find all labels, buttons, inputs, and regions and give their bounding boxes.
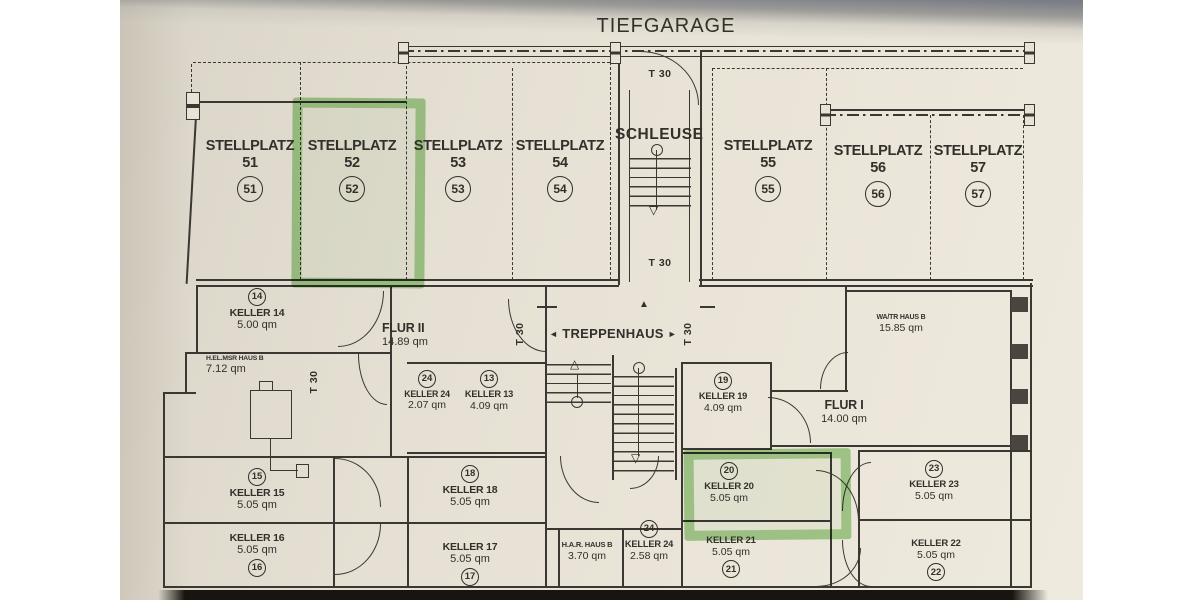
stellplatz-number-badge: 52 bbox=[339, 176, 365, 202]
room-name: KELLER 24 bbox=[618, 539, 680, 550]
room-keller-14: 14 KELLER 14 5.00 qm bbox=[212, 286, 302, 332]
room-number-badge: 18 bbox=[461, 465, 479, 483]
room-name: KELLER 13 bbox=[458, 389, 520, 400]
wall-dashdot bbox=[402, 50, 1034, 52]
wall bbox=[185, 352, 187, 392]
room-keller-24a: 24 KELLER 24 2.07 qm bbox=[400, 368, 454, 411]
wall bbox=[402, 56, 1034, 57]
column-post bbox=[610, 42, 621, 64]
stellplatz-number-badge: 56 bbox=[865, 181, 891, 207]
room-keller-24b: 24 KELLER 24 2.58 qm bbox=[618, 518, 680, 562]
floor-plan-photo: ▽ △ ▽ TIEFGARAGE T 30 SCHLEUSE T 30 ▲ ◄ … bbox=[0, 0, 1200, 600]
room-number-badge: 13 bbox=[480, 370, 498, 388]
stellplatz-name: STELLPLATZ 57 bbox=[926, 143, 1030, 177]
wall bbox=[163, 586, 1032, 588]
t30-door-label-schleuse: T 30 bbox=[632, 68, 688, 80]
stellplatz-number-badge: 51 bbox=[237, 176, 263, 202]
stair-up-arrow-icon: △ bbox=[570, 358, 579, 370]
column-post bbox=[398, 42, 409, 64]
room-name: KELLER 18 bbox=[430, 484, 510, 496]
room-area: 5.05 qm bbox=[902, 490, 966, 502]
wall-pier bbox=[1011, 435, 1028, 450]
stellplatz-name: STELLPLATZ 53 bbox=[406, 138, 510, 172]
wall bbox=[390, 287, 392, 456]
equipment-outline bbox=[272, 381, 273, 390]
column-post bbox=[186, 92, 200, 120]
t30-door-label-stairwell-top: T 30 bbox=[632, 257, 688, 269]
equipment-pipe bbox=[270, 438, 271, 470]
room-number-badge: 15 bbox=[248, 468, 266, 486]
room-area: 3.70 qm bbox=[552, 550, 622, 562]
room-keller-15: 15 KELLER 15 5.05 qm bbox=[218, 466, 296, 512]
room-area: 7.12 qm bbox=[206, 363, 286, 376]
equipment-outline bbox=[291, 390, 292, 438]
room-number-badge: 17 bbox=[461, 568, 479, 586]
door-arc bbox=[335, 458, 381, 507]
wall bbox=[163, 456, 545, 458]
stellplatz-56-label: STELLPLATZ 56 56 bbox=[826, 143, 930, 208]
room-area: 5.05 qm bbox=[430, 496, 510, 509]
equipment-outline bbox=[250, 390, 292, 391]
wall bbox=[407, 456, 409, 587]
stellplatz-number-badge: 53 bbox=[445, 176, 471, 202]
stellplatz-53-label: STELLPLATZ 53 53 bbox=[406, 138, 510, 203]
direction-up-arrow-icon: ▲ bbox=[639, 300, 649, 310]
door-arc bbox=[358, 354, 387, 405]
equipment-box bbox=[296, 477, 309, 478]
stellplatz-name: STELLPLATZ 56 bbox=[826, 143, 930, 177]
room-keller-13: 13 KELLER 13 4.09 qm bbox=[458, 368, 520, 412]
room-number-badge: 24 bbox=[640, 520, 658, 538]
room-number-badge: 24 bbox=[418, 370, 436, 388]
stellplatz-name: STELLPLATZ 55 bbox=[716, 138, 820, 172]
stellplatz-number-badge: 55 bbox=[755, 176, 781, 202]
stellplatz-name: STELLPLATZ 51 bbox=[198, 138, 302, 172]
t30-door-label-right: T 30 bbox=[682, 314, 694, 354]
wall bbox=[824, 109, 1034, 111]
wall-dashdot bbox=[824, 114, 1034, 116]
wall bbox=[196, 287, 198, 352]
room-keller-17: KELLER 17 5.05 qm 17 bbox=[430, 541, 510, 587]
room-name: FLUR I bbox=[812, 398, 876, 413]
room-number-badge: 14 bbox=[248, 288, 266, 306]
wall-pier bbox=[1011, 389, 1028, 404]
room-name: KELLER 19 bbox=[688, 391, 758, 402]
room-area: 2.58 qm bbox=[618, 550, 680, 562]
wall bbox=[618, 50, 620, 285]
room-number-badge: 22 bbox=[927, 563, 945, 581]
wall-pier bbox=[1011, 344, 1028, 359]
column-post bbox=[820, 104, 831, 126]
equipment-box bbox=[296, 464, 297, 477]
floor-plan: ▽ △ ▽ TIEFGARAGE T 30 SCHLEUSE T 30 ▲ ◄ … bbox=[0, 0, 1200, 600]
page-title: TIEFGARAGE bbox=[586, 15, 746, 38]
stair-start-circle bbox=[571, 396, 583, 408]
door-arc bbox=[820, 352, 848, 389]
stairwell-flight-right bbox=[613, 368, 674, 474]
room-number-badge: 23 bbox=[925, 460, 943, 478]
room-keller-21: KELLER 21 5.05 qm 21 bbox=[700, 535, 762, 579]
arrow-right-icon: ► bbox=[668, 329, 677, 339]
room-name: KELLER 15 bbox=[218, 487, 296, 499]
room-area: 5.05 qm bbox=[430, 553, 510, 566]
stair-walkline bbox=[577, 374, 578, 398]
door-arc bbox=[842, 540, 871, 587]
stair-down-arrow-icon: ▽ bbox=[631, 452, 640, 464]
stellplatz-54-label: STELLPLATZ 54 54 bbox=[508, 138, 612, 203]
wall bbox=[681, 362, 683, 588]
room-name: KELLER 22 bbox=[904, 538, 968, 549]
room-area: 5.00 qm bbox=[212, 319, 302, 332]
room-har-haus-b: H.A.R. HAUS B 3.70 qm bbox=[552, 541, 622, 562]
equipment-box bbox=[308, 464, 309, 477]
room-area: 5.05 qm bbox=[904, 549, 968, 561]
room-keller-23: 23 KELLER 23 5.05 qm bbox=[902, 458, 966, 502]
equipment-outline bbox=[259, 381, 273, 382]
bay-boundary bbox=[712, 68, 1023, 69]
room-area: 5.05 qm bbox=[700, 546, 762, 558]
t30-door-label-west: T 30 bbox=[308, 362, 320, 402]
room-watr-haus-b: WA/TR HAUS B 15.85 qm bbox=[866, 314, 936, 335]
wall bbox=[407, 362, 545, 364]
room-number-badge: 19 bbox=[714, 372, 732, 390]
room-area: 5.05 qm bbox=[218, 544, 296, 557]
stellplatz-55-label: STELLPLATZ 55 55 bbox=[716, 138, 820, 203]
room-name: H.A.R. HAUS B bbox=[552, 541, 622, 550]
room-number-badge: 16 bbox=[248, 559, 266, 577]
room-area: 14.00 qm bbox=[812, 413, 876, 426]
room-keller-19: 19 KELLER 19 4.09 qm bbox=[688, 370, 758, 414]
room-name: KELLER 21 bbox=[700, 535, 762, 546]
stair-down-arrow-icon: ▽ bbox=[649, 204, 658, 216]
stair-walkline bbox=[638, 368, 639, 456]
room-area: 5.05 qm bbox=[698, 492, 760, 504]
wall bbox=[699, 285, 1033, 287]
wall bbox=[858, 450, 1030, 452]
room-keller-16: KELLER 16 5.05 qm 16 bbox=[218, 532, 296, 578]
stellplatz-51-label: STELLPLATZ 51 51 bbox=[198, 138, 302, 203]
room-name: KELLER 17 bbox=[430, 541, 510, 553]
door-arc bbox=[560, 456, 599, 503]
equipment-outline bbox=[259, 381, 260, 390]
stair-walkline bbox=[656, 150, 657, 210]
wall bbox=[770, 445, 1010, 447]
room-name: KELLER 20 bbox=[698, 481, 760, 492]
equipment-pipe bbox=[270, 470, 298, 471]
wall bbox=[700, 50, 702, 285]
door-arc bbox=[335, 524, 381, 575]
wall bbox=[402, 46, 1034, 47]
room-keller-20: 20 KELLER 20 5.05 qm bbox=[698, 460, 760, 504]
stellplatz-57-label: STELLPLATZ 57 57 bbox=[926, 143, 1030, 208]
t30-door-label-left: T 30 bbox=[514, 314, 526, 354]
schleuse-label: SCHLEUSE bbox=[615, 126, 703, 144]
room-flur-1: FLUR I 14.00 qm bbox=[812, 398, 876, 426]
room-area: 4.09 qm bbox=[458, 400, 520, 412]
wall bbox=[1030, 283, 1032, 588]
room-name: KELLER 14 bbox=[212, 307, 302, 319]
stellplatz-number-badge: 57 bbox=[965, 181, 991, 207]
wall-pier bbox=[1011, 297, 1028, 312]
room-area: 15.85 qm bbox=[866, 322, 936, 334]
room-name: KELLER 23 bbox=[902, 479, 966, 490]
room-name: FLUR II bbox=[382, 321, 462, 336]
room-number-badge: 21 bbox=[722, 560, 740, 578]
room-area: 2.07 qm bbox=[400, 399, 454, 411]
stellplatz-name: STELLPLATZ 54 bbox=[508, 138, 612, 172]
wall bbox=[163, 392, 165, 588]
room-keller-22: KELLER 22 5.05 qm 22 bbox=[904, 538, 968, 582]
room-name: KELLER 24 bbox=[400, 389, 454, 399]
stellplatz-number-badge: 54 bbox=[547, 176, 573, 202]
wall bbox=[407, 452, 545, 454]
wall bbox=[186, 98, 198, 284]
bay-boundary bbox=[712, 68, 713, 280]
column-post bbox=[1024, 104, 1035, 126]
equipment-outline bbox=[250, 390, 251, 438]
wall bbox=[163, 392, 196, 394]
wall bbox=[845, 290, 1010, 292]
arrow-left-icon: ◄ bbox=[549, 329, 558, 339]
room-name: H.EL.MSR HAUS B bbox=[206, 355, 286, 363]
wall bbox=[681, 362, 770, 364]
stellplatz-52-label: STELLPLATZ 52 52 bbox=[300, 138, 404, 203]
room-number-badge: 20 bbox=[720, 462, 738, 480]
wall bbox=[770, 390, 848, 392]
schleuse-stairs bbox=[629, 150, 691, 214]
room-elmsr-haus-b: H.EL.MSR HAUS B 7.12 qm bbox=[206, 355, 286, 376]
wall bbox=[700, 306, 715, 308]
room-name: KELLER 16 bbox=[218, 532, 296, 544]
wall bbox=[858, 519, 1030, 521]
column-post bbox=[1024, 42, 1035, 64]
wall bbox=[675, 368, 677, 480]
room-area: 4.09 qm bbox=[688, 402, 758, 414]
room-keller-18: 18 KELLER 18 5.05 qm bbox=[430, 463, 510, 509]
wall bbox=[699, 279, 1033, 281]
treppenhaus-label: ◄ TREPPENHAUS ► bbox=[549, 326, 677, 341]
room-area: 5.05 qm bbox=[218, 499, 296, 512]
treppenhaus-text: TREPPENHAUS bbox=[562, 326, 664, 341]
room-flur-2: FLUR II 14.89 qm bbox=[368, 321, 462, 349]
room-name: WA/TR HAUS B bbox=[866, 314, 936, 322]
room-area: 14.89 qm bbox=[382, 336, 462, 349]
door-arc bbox=[768, 397, 811, 443]
stellplatz-name: STELLPLATZ 52 bbox=[300, 138, 404, 172]
